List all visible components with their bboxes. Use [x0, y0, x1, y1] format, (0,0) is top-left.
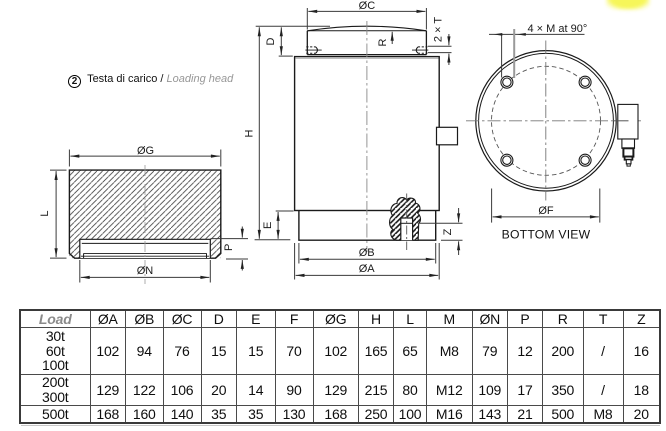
- svg-text:Z: Z: [442, 228, 454, 235]
- svg-text:BOTTOM VIEW: BOTTOM VIEW: [502, 228, 591, 242]
- svg-text:ØA: ØA: [359, 263, 376, 275]
- svg-text:P: P: [223, 244, 235, 251]
- svg-text:ØG: ØG: [137, 145, 154, 157]
- svg-text:ØN: ØN: [137, 265, 154, 277]
- svg-text:H: H: [243, 129, 255, 137]
- svg-text:E: E: [262, 222, 274, 229]
- svg-text:4 × M at 90°: 4 × M at 90°: [528, 23, 588, 35]
- svg-text:ØC: ØC: [359, 0, 376, 12]
- svg-text:ØB: ØB: [359, 247, 375, 259]
- svg-text:2 × T: 2 × T: [432, 17, 444, 42]
- svg-text:ØF: ØF: [538, 205, 554, 217]
- svg-text:R: R: [377, 38, 389, 46]
- svg-text:D: D: [265, 37, 277, 45]
- svg-text:L: L: [39, 210, 51, 216]
